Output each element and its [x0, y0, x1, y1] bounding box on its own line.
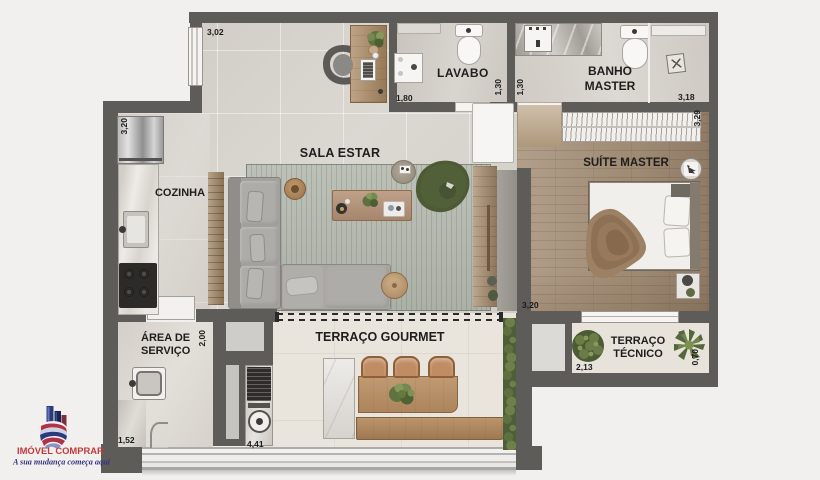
svg-text:A sua mudança começa aqui: A sua mudança começa aqui	[12, 458, 111, 467]
svg-text:IMÓVEL COMPRAR: IMÓVEL COMPRAR	[17, 445, 104, 456]
